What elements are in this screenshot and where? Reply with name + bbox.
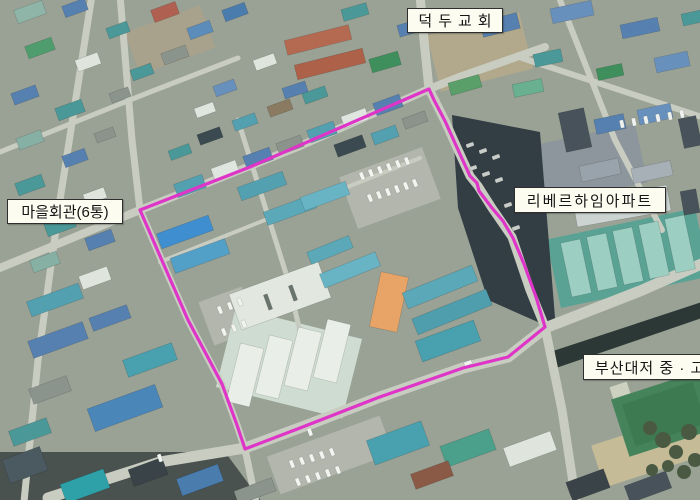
- label-deokdu-church: 덕두교회: [407, 8, 503, 33]
- label-village-hall-6tong: 마을회관(6통): [7, 199, 123, 224]
- label-busan-daejeo-school: 부산대저 중 · 고: [583, 354, 700, 380]
- aerial-map: 덕두교회 마을회관(6통) 리베르하임아파트 부산대저 중 · 고: [0, 0, 700, 500]
- satellite-imagery: [0, 0, 700, 500]
- label-riverheim-apartment: 리베르하임아파트: [514, 187, 666, 213]
